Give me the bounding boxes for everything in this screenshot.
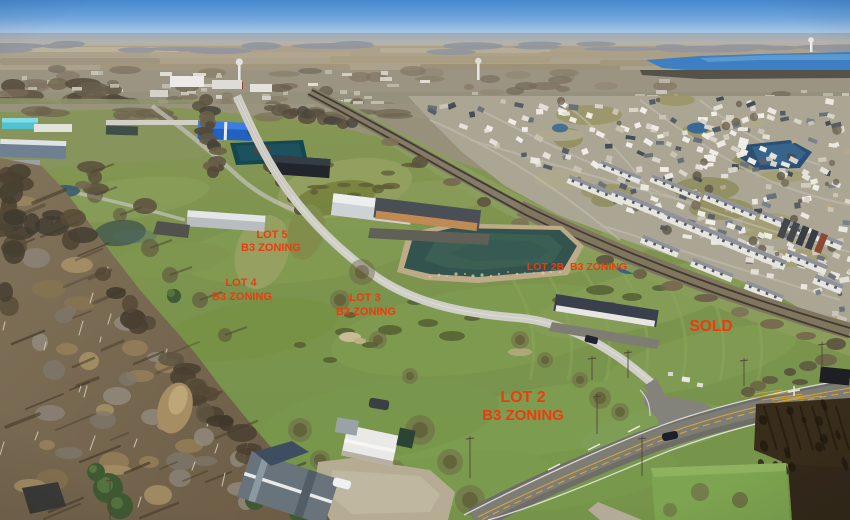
- svg-text:LOT 2B B3 ZONING: LOT 2B B3 ZONING: [527, 261, 627, 273]
- svg-text:B3 ZONING: B3 ZONING: [212, 291, 272, 303]
- svg-text:LOT 2: LOT 2: [500, 389, 545, 406]
- svg-text:LOT 4: LOT 4: [225, 277, 257, 289]
- svg-text:B3 ZONING: B3 ZONING: [241, 242, 301, 254]
- svg-text:B3 ZONING: B3 ZONING: [482, 407, 564, 424]
- svg-text:SOLD: SOLD: [689, 318, 732, 335]
- svg-text:B3 ZONING: B3 ZONING: [336, 306, 396, 318]
- svg-text:LOT 5: LOT 5: [256, 229, 287, 241]
- svg-text:LOT 3: LOT 3: [349, 292, 380, 304]
